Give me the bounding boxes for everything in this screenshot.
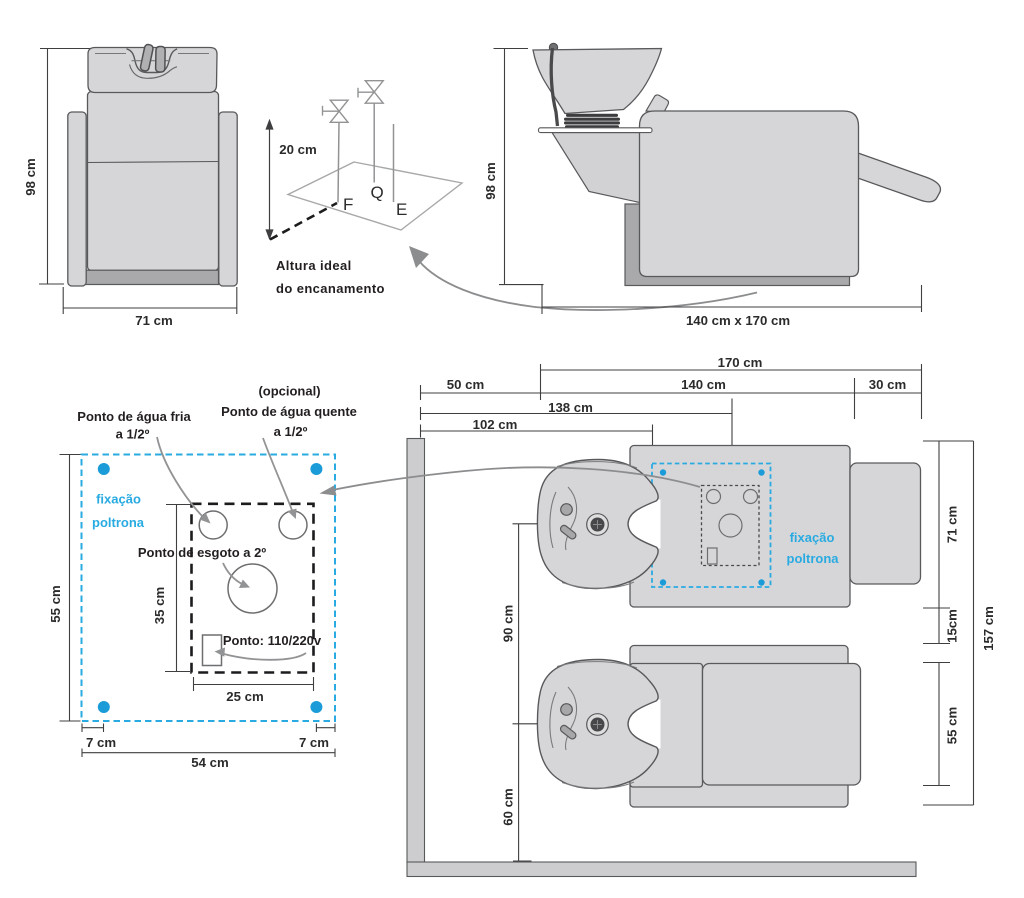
svg-text:60 cm: 60 cm <box>501 788 516 825</box>
svg-text:138 cm: 138 cm <box>548 400 593 415</box>
svg-text:35 cm: 35 cm <box>152 587 167 624</box>
svg-text:98 cm: 98 cm <box>23 158 38 195</box>
svg-text:(opcional): (opcional) <box>258 384 320 399</box>
svg-text:fixação: fixação <box>96 492 141 507</box>
svg-text:7 cm: 7 cm <box>299 735 329 750</box>
svg-text:157 cm: 157 cm <box>981 606 996 651</box>
svg-text:25 cm: 25 cm <box>226 689 263 704</box>
svg-text:50 cm: 50 cm <box>447 377 484 392</box>
svg-text:Ponto: 110/220v: Ponto: 110/220v <box>223 633 322 648</box>
svg-text:54 cm: 54 cm <box>191 755 228 770</box>
svg-text:55 cm: 55 cm <box>48 585 63 622</box>
svg-text:F: F <box>343 195 353 214</box>
svg-text:20 cm: 20 cm <box>279 142 316 157</box>
svg-text:98 cm: 98 cm <box>483 162 498 199</box>
svg-text:71 cm: 71 cm <box>945 506 960 543</box>
svg-text:7 cm: 7 cm <box>86 735 116 750</box>
svg-text:poltrona: poltrona <box>92 515 145 530</box>
svg-text:Q: Q <box>371 183 384 202</box>
svg-text:a 1/2º: a 1/2º <box>274 424 308 439</box>
svg-text:140 cm x 170 cm: 140 cm x 170 cm <box>686 313 790 328</box>
svg-text:170 cm: 170 cm <box>718 355 763 370</box>
svg-text:Altura ideal: Altura ideal <box>276 258 352 273</box>
svg-text:30 cm: 30 cm <box>869 377 906 392</box>
svg-text:E: E <box>396 200 407 219</box>
svg-text:Ponto de esgoto a 2º: Ponto de esgoto a 2º <box>138 545 267 560</box>
svg-text:a 1/2º: a 1/2º <box>116 427 150 442</box>
svg-text:140 cm: 140 cm <box>681 377 726 392</box>
svg-text:102 cm: 102 cm <box>473 417 518 432</box>
svg-text:15cm: 15cm <box>945 609 960 643</box>
svg-text:Ponto de água quente: Ponto de água quente <box>221 404 357 419</box>
svg-text:55 cm: 55 cm <box>945 707 960 744</box>
svg-text:do encanamento: do encanamento <box>276 281 385 296</box>
svg-text:90 cm: 90 cm <box>501 605 516 642</box>
svg-text:71 cm: 71 cm <box>135 313 172 328</box>
svg-text:poltrona: poltrona <box>787 551 840 566</box>
svg-text:Ponto de água fria: Ponto de água fria <box>77 409 191 424</box>
svg-text:fixação: fixação <box>790 530 835 545</box>
